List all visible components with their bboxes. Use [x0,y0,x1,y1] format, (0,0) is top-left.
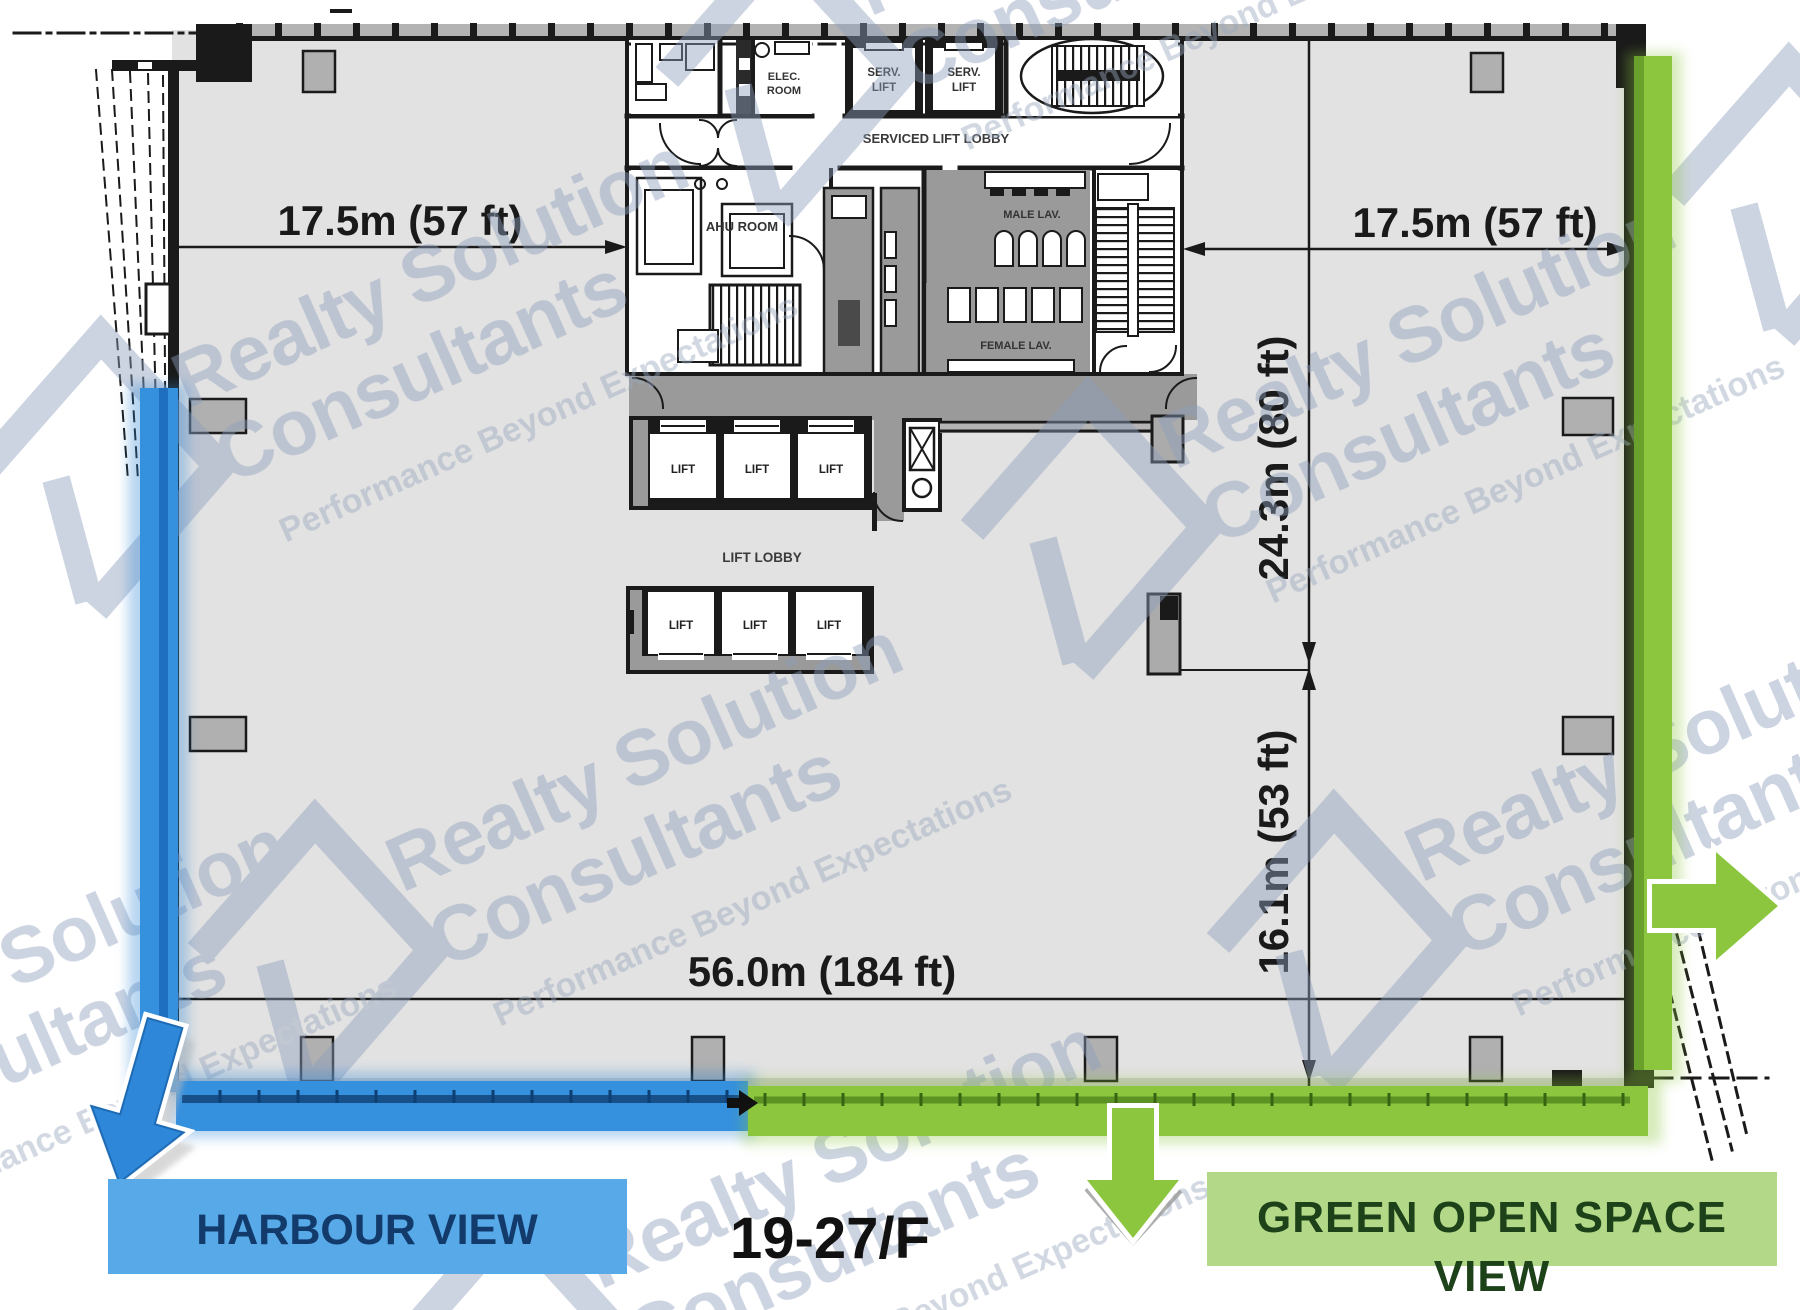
svg-text:ROOM: ROOM [767,85,801,97]
svg-text:HARBOUR VIEW: HARBOUR VIEW [196,1206,538,1254]
svg-text:AHU ROOM: AHU ROOM [706,219,778,234]
svg-text:LIFT: LIFT [669,620,693,632]
svg-text:MALE LAV.: MALE LAV. [1003,209,1060,221]
svg-text:ELEC.: ELEC. [768,71,800,83]
svg-text:GREEN OPEN SPACE: GREEN OPEN SPACE [1257,1193,1727,1242]
svg-text:FEMALE LAV.: FEMALE LAV. [980,340,1052,352]
svg-text:LIFT: LIFT [743,620,767,632]
svg-text:56.0m (184 ft): 56.0m (184 ft) [688,948,956,995]
svg-text:LIFT: LIFT [745,464,769,476]
svg-text:VIEW: VIEW [1434,1252,1550,1301]
svg-text:LIFT: LIFT [671,464,695,476]
svg-text:LIFT: LIFT [819,464,843,476]
svg-text:LIFT LOBBY: LIFT LOBBY [722,550,802,565]
svg-text:19-27/F: 19-27/F [730,1206,930,1271]
